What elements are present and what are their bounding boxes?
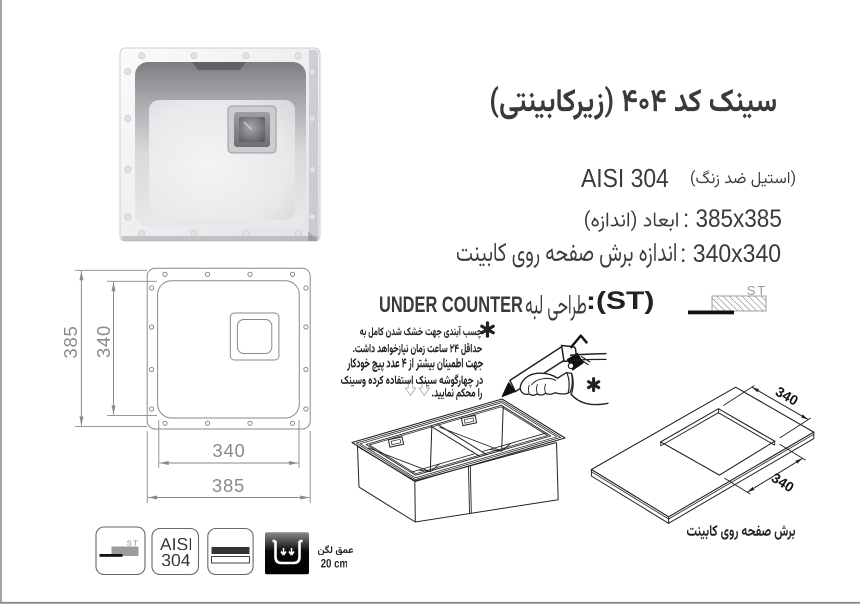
svg-text:ST: ST: [127, 539, 140, 548]
